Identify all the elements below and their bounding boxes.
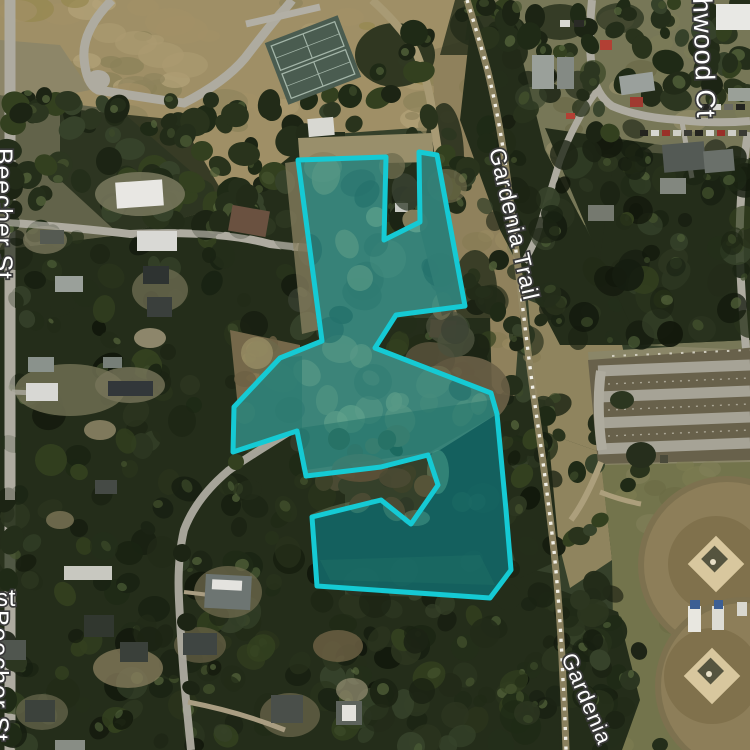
svg-text:hwood Ct: hwood Ct (687, 0, 721, 119)
svg-text:Beecher St: Beecher St (0, 148, 17, 280)
svg-text:Beecher St: Beecher St (0, 610, 13, 742)
svg-text:st: st (0, 585, 16, 612)
